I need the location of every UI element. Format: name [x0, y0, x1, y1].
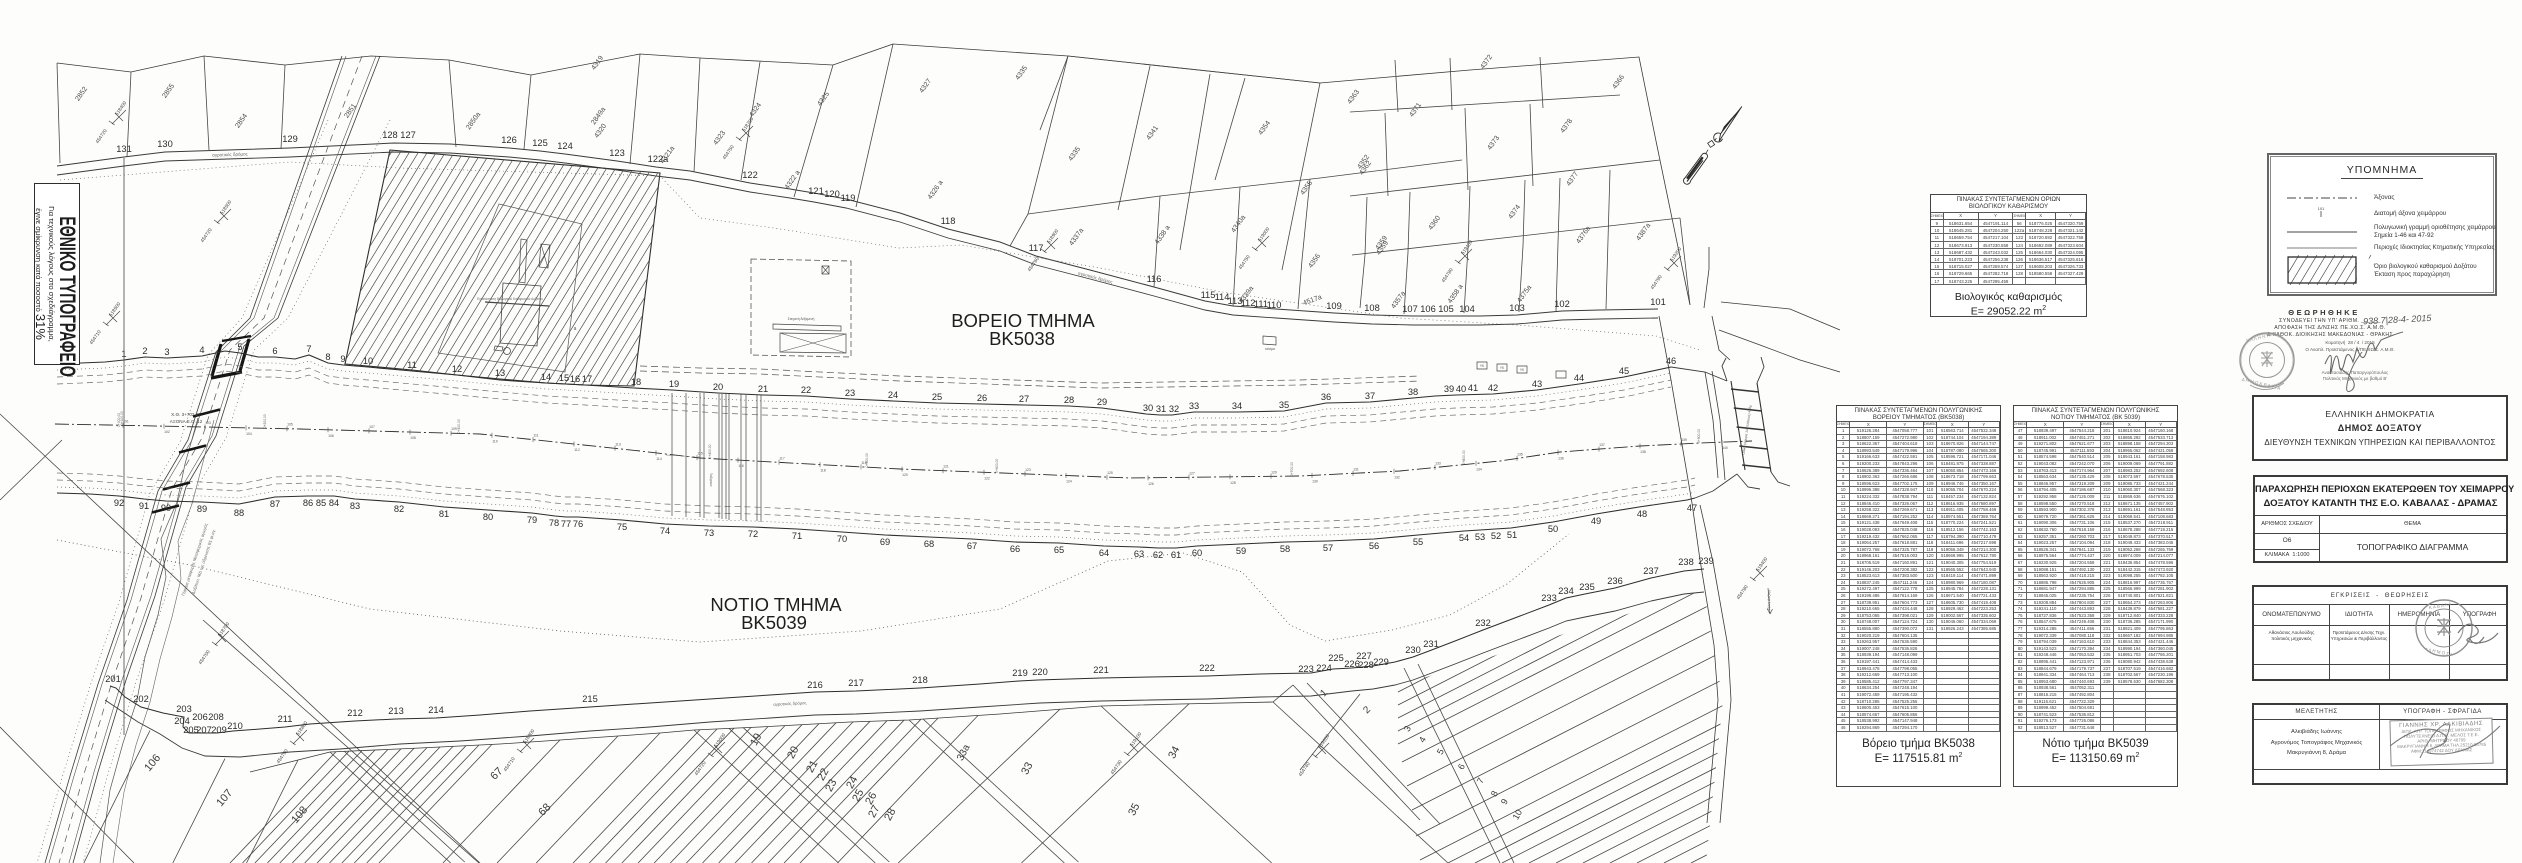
svg-text:4366: 4366 — [1611, 74, 1626, 91]
svg-text:48: 48 — [1637, 509, 1647, 519]
svg-text:4: 4 — [199, 345, 204, 355]
svg-text:454720: 454720 — [200, 227, 214, 244]
svg-text:32: 32 — [1169, 404, 1179, 414]
svg-text:89: 89 — [197, 504, 207, 514]
svg-text:7: 7 — [1475, 776, 1486, 785]
svg-text:139: 139 — [1681, 438, 1687, 442]
svg-text:103: 103 — [1509, 303, 1525, 313]
svg-text:136: 136 — [1558, 456, 1564, 460]
svg-text:454700: 454700 — [198, 649, 212, 666]
svg-text:130: 130 — [1312, 479, 1318, 483]
svg-text:4337a: 4337a — [1068, 227, 1085, 247]
svg-text:114: 114 — [656, 457, 662, 461]
svg-text:80: 80 — [483, 512, 493, 522]
svg-text:κτίσμα: κτίσμα — [1265, 347, 1275, 351]
svg-text:60: 60 — [1192, 548, 1202, 558]
svg-text:4338 a: 4338 a — [1154, 224, 1172, 246]
svg-text:63: 63 — [1134, 549, 1144, 559]
svg-text:2: 2 — [142, 346, 147, 356]
svg-text:88: 88 — [234, 508, 244, 518]
svg-text:65: 65 — [1054, 545, 1064, 555]
svg-text:206: 206 — [192, 712, 208, 722]
svg-text:229: 229 — [1373, 657, 1389, 667]
svg-text:28: 28 — [882, 806, 898, 822]
svg-text:124: 124 — [1066, 480, 1072, 484]
svg-text:αγροτικός δρόμος: αγροτικός δρόμος — [773, 700, 806, 707]
svg-text:207: 207 — [196, 725, 212, 735]
svg-text:231: 231 — [1423, 639, 1439, 649]
svg-text:13: 13 — [495, 368, 505, 378]
svg-text:108: 108 — [410, 436, 416, 440]
svg-text:235: 235 — [1579, 582, 1595, 592]
svg-text:129: 129 — [282, 134, 298, 144]
svg-text:126: 126 — [1148, 482, 1154, 486]
svg-text:7: 7 — [306, 344, 311, 354]
svg-text:4356: 4356 — [1307, 253, 1322, 270]
svg-text:131: 131 — [116, 144, 132, 154]
svg-text:454760: 454760 — [1027, 256, 1041, 273]
svg-text:105: 105 — [287, 423, 293, 427]
svg-text:130: 130 — [157, 139, 173, 149]
svg-text:68: 68 — [924, 539, 934, 549]
svg-text:92: 92 — [114, 498, 124, 508]
svg-text:454790: 454790 — [1650, 274, 1664, 291]
svg-text:68: 68 — [536, 801, 553, 818]
svg-text:101: 101 — [2318, 206, 2325, 211]
svg-text:a: a — [574, 326, 577, 332]
svg-text:120: 120 — [902, 473, 908, 477]
svg-text:45: 45 — [1619, 366, 1629, 376]
svg-text:9: 9 — [1499, 797, 1510, 806]
svg-text:25: 25 — [932, 392, 942, 402]
svg-text:67: 67 — [488, 765, 505, 782]
svg-text:4324: 4324 — [748, 102, 763, 119]
svg-text:39: 39 — [1444, 384, 1454, 394]
svg-text:Στεγανή δεξαμενή: Στεγανή δεξαμενή — [788, 317, 815, 321]
svg-text:138: 138 — [1640, 450, 1646, 454]
svg-text:27: 27 — [866, 803, 882, 819]
svg-text:34: 34 — [1232, 401, 1242, 411]
svg-text:71: 71 — [792, 531, 802, 541]
svg-text:211: 211 — [278, 714, 293, 724]
svg-text:24: 24 — [844, 774, 860, 790]
svg-text:91: 91 — [139, 501, 149, 511]
svg-text:33: 33 — [1019, 760, 1035, 776]
svg-text:119: 119 — [841, 193, 856, 203]
svg-text:218: 218 — [912, 675, 928, 685]
svg-text:0+900.00: 0+900.00 — [1697, 429, 1701, 443]
svg-text:76: 76 — [573, 519, 583, 529]
svg-text:113: 113 — [615, 442, 621, 446]
svg-text:232: 232 — [1475, 618, 1491, 628]
svg-text:79: 79 — [527, 515, 537, 525]
svg-text:ΥΚ: ΥΚ — [1500, 366, 1505, 370]
svg-text:454750: 454750 — [722, 144, 736, 161]
svg-text:35: 35 — [1126, 801, 1142, 817]
svg-text:5: 5 — [237, 342, 242, 352]
svg-text:73: 73 — [704, 528, 714, 538]
svg-text:131: 131 — [1353, 467, 1359, 471]
svg-text:4376a: 4376a — [1575, 225, 1592, 245]
svg-text:82: 82 — [394, 504, 404, 514]
svg-text:10: 10 — [363, 356, 373, 366]
svg-text:14: 14 — [541, 372, 551, 382]
svg-text:4325: 4325 — [816, 91, 831, 108]
svg-text:4517a: 4517a — [1302, 294, 1323, 307]
svg-text:4373: 4373 — [1486, 135, 1501, 152]
svg-text:121: 121 — [808, 186, 824, 196]
svg-text:53: 53 — [1475, 532, 1485, 542]
svg-text:50: 50 — [1548, 524, 1558, 534]
svg-text:203: 203 — [176, 704, 192, 714]
svg-text:112: 112 — [574, 448, 580, 452]
svg-text:125: 125 — [532, 138, 548, 148]
svg-text:107: 107 — [369, 425, 375, 429]
svg-text:221: 221 — [1093, 665, 1109, 675]
svg-text:8: 8 — [1489, 789, 1500, 798]
svg-text:21: 21 — [758, 384, 768, 394]
svg-text:217: 217 — [848, 678, 864, 688]
svg-text:2: 2 — [1361, 704, 1373, 716]
svg-text:102: 102 — [164, 430, 170, 434]
svg-text:59: 59 — [1236, 546, 1246, 556]
svg-text:110: 110 — [1267, 300, 1282, 310]
svg-text:108: 108 — [289, 804, 310, 826]
svg-text:38: 38 — [1408, 387, 1418, 397]
svg-text:105: 105 — [1438, 304, 1454, 314]
svg-text:37: 37 — [1365, 391, 1375, 401]
svg-text:15: 15 — [559, 373, 569, 383]
svg-text:209: 209 — [211, 725, 227, 735]
svg-text:129: 129 — [1271, 470, 1277, 474]
svg-text:8: 8 — [325, 352, 330, 362]
svg-text:4326 a: 4326 a — [927, 179, 945, 201]
svg-text:106: 106 — [328, 434, 334, 438]
svg-text:107: 107 — [214, 787, 235, 809]
svg-text:133: 133 — [1435, 462, 1441, 466]
svg-text:52: 52 — [1491, 531, 1501, 541]
svg-text:23: 23 — [845, 388, 855, 398]
svg-text:9: 9 — [340, 354, 345, 364]
svg-text:115: 115 — [1201, 290, 1216, 300]
svg-text:212: 212 — [347, 708, 363, 718]
svg-text:86: 86 — [303, 498, 313, 508]
svg-text:123: 123 — [1025, 468, 1031, 472]
svg-text:225: 225 — [1328, 653, 1344, 663]
svg-text:61: 61 — [1171, 550, 1181, 560]
svg-text:16: 16 — [570, 374, 580, 384]
svg-text:34: 34 — [1166, 744, 1182, 760]
svg-text:6: 6 — [1456, 762, 1467, 771]
svg-text:215: 215 — [582, 694, 598, 704]
svg-text:84: 84 — [329, 498, 339, 508]
svg-text:29: 29 — [1097, 397, 1107, 407]
svg-text:454780: 454780 — [1736, 584, 1750, 601]
svg-text:28: 28 — [1064, 395, 1074, 405]
svg-text:69: 69 — [880, 537, 890, 547]
svg-text:4355: 4355 — [1299, 180, 1314, 197]
svg-text:17: 17 — [582, 374, 592, 384]
svg-text:123: 123 — [609, 148, 625, 158]
svg-text:101: 101 — [1650, 297, 1666, 307]
svg-text:11: 11 — [407, 360, 417, 370]
svg-text:31: 31 — [1156, 404, 1166, 414]
svg-text:222: 222 — [1199, 663, 1215, 673]
svg-text:220: 220 — [1032, 667, 1048, 677]
svg-text:72: 72 — [748, 529, 758, 539]
svg-text:4378: 4378 — [1559, 118, 1574, 135]
svg-text:0+200.00: 0+200.00 — [263, 414, 267, 428]
svg-text:83: 83 — [350, 501, 360, 511]
svg-text:87: 87 — [270, 499, 280, 509]
svg-text:64: 64 — [1099, 548, 1109, 558]
svg-text:0+500.00: 0+500.00 — [865, 453, 869, 467]
svg-text:18: 18 — [631, 377, 641, 387]
svg-text:43: 43 — [1532, 379, 1542, 389]
svg-text:454710: 454710 — [503, 756, 517, 773]
svg-text:4371: 4371 — [1408, 102, 1423, 119]
svg-text:127: 127 — [1189, 471, 1195, 475]
svg-text:108: 108 — [1364, 303, 1380, 313]
svg-text:70: 70 — [837, 534, 847, 544]
svg-text:20: 20 — [785, 744, 801, 760]
svg-text:27: 27 — [1019, 394, 1029, 404]
svg-text:55: 55 — [1413, 537, 1423, 547]
svg-text:106: 106 — [1420, 304, 1436, 314]
svg-text:4354: 4354 — [1257, 120, 1272, 137]
svg-text:0+700.00: 0+700.00 — [1290, 462, 1294, 476]
svg-text:238: 238 — [1678, 557, 1694, 567]
svg-text:2852: 2852 — [74, 86, 89, 103]
svg-text:74: 74 — [660, 526, 670, 536]
svg-text:124: 124 — [557, 141, 573, 151]
svg-text:237: 237 — [1643, 566, 1659, 576]
svg-text:75: 75 — [617, 522, 627, 532]
svg-text:67: 67 — [967, 541, 977, 551]
svg-text:77: 77 — [561, 519, 571, 529]
svg-text:454750: 454750 — [1238, 254, 1252, 271]
svg-text:454720: 454720 — [95, 128, 109, 145]
svg-text:0+300.00: 0+300.00 — [457, 419, 461, 433]
svg-text:6: 6 — [272, 346, 277, 356]
svg-text:233: 233 — [1541, 593, 1557, 603]
svg-text:4335: 4335 — [1067, 146, 1082, 163]
svg-text:33: 33 — [1189, 401, 1199, 411]
svg-text:57: 57 — [1323, 543, 1333, 553]
svg-text:118: 118 — [820, 469, 826, 473]
svg-text:135: 135 — [1517, 452, 1523, 456]
svg-text:4341: 4341 — [1145, 125, 1160, 142]
svg-text:81: 81 — [439, 509, 449, 519]
svg-text:58: 58 — [1280, 544, 1290, 554]
svg-text:4340a: 4340a — [1230, 214, 1247, 234]
svg-text:4335: 4335 — [1014, 65, 1029, 82]
svg-text:0+800.00: 0+800.00 — [1462, 450, 1466, 464]
svg-text:3: 3 — [1402, 724, 1413, 733]
svg-text:41: 41 — [1468, 383, 1478, 393]
svg-text:234: 234 — [1558, 586, 1574, 596]
svg-text:αγροτικός δρόμος: αγροτικός δρόμος — [212, 150, 249, 157]
svg-text:ΥΚ: ΥΚ — [1520, 368, 1525, 372]
svg-text:4: 4 — [1417, 735, 1428, 744]
svg-text:ΑΞΟΝΑ Ε.Ο. 12: ΑΞΟΝΑ Ε.Ο. 12 — [170, 419, 203, 424]
svg-text:56: 56 — [1369, 541, 1379, 551]
svg-text:42: 42 — [1488, 383, 1498, 393]
svg-text:2850a: 2850a — [465, 111, 482, 131]
svg-text:140: 140 — [1722, 446, 1728, 450]
svg-text:22: 22 — [801, 385, 811, 395]
svg-text:4363: 4363 — [1346, 89, 1361, 106]
svg-text:236: 236 — [1607, 576, 1623, 586]
svg-text:201: 201 — [105, 674, 121, 684]
svg-text:104: 104 — [1459, 304, 1475, 314]
svg-text:4375a: 4375a — [1516, 284, 1533, 304]
svg-text:230: 230 — [1405, 645, 1421, 655]
svg-text:224: 224 — [1316, 663, 1332, 673]
svg-text:ΒΚ5038: ΒΚ5038 — [989, 328, 1055, 349]
svg-text:49: 49 — [1591, 516, 1601, 526]
svg-text:118: 118 — [941, 216, 956, 226]
svg-text:24: 24 — [888, 390, 898, 400]
svg-text:103: 103 — [205, 421, 211, 425]
svg-text:111: 111 — [533, 434, 538, 438]
svg-text:51: 51 — [1507, 530, 1517, 540]
svg-text:85: 85 — [316, 498, 326, 508]
svg-text:19: 19 — [669, 379, 679, 389]
svg-text:Χ.Θ. 3+702,27: Χ.Θ. 3+702,27 — [171, 412, 201, 417]
svg-text:36: 36 — [1321, 392, 1331, 402]
svg-text:0+600.00: 0+600.00 — [995, 459, 999, 473]
svg-text:128 127: 128 127 — [382, 130, 416, 140]
svg-text:33a: 33a — [955, 742, 973, 762]
svg-text:3: 3 — [164, 347, 169, 357]
svg-text:4360: 4360 — [1427, 215, 1442, 232]
svg-text:20: 20 — [713, 382, 723, 392]
svg-text:62: 62 — [1153, 550, 1163, 560]
svg-text:214: 214 — [428, 705, 444, 715]
svg-text:2854: 2854 — [234, 113, 249, 130]
svg-text:122: 122 — [984, 476, 990, 480]
svg-text:454710: 454710 — [89, 329, 103, 346]
svg-text:104: 104 — [246, 432, 252, 436]
svg-text:223: 223 — [1298, 664, 1314, 674]
svg-text:0+400.00: 0+400.00 — [708, 444, 712, 458]
svg-text:210: 210 — [227, 721, 243, 731]
svg-text:4327: 4327 — [918, 78, 933, 95]
svg-text:122: 122 — [742, 170, 758, 180]
svg-text:44: 44 — [1574, 373, 1584, 383]
svg-text:10: 10 — [1511, 808, 1525, 822]
svg-text:78: 78 — [549, 518, 559, 528]
svg-text:ΥΚ: ΥΚ — [1480, 364, 1485, 368]
svg-text:4374: 4374 — [1507, 204, 1522, 221]
svg-text:121: 121 — [943, 465, 949, 469]
svg-text:12: 12 — [452, 364, 462, 374]
svg-text:2855: 2855 — [161, 83, 176, 100]
svg-text:5: 5 — [1435, 747, 1446, 756]
svg-text:216: 216 — [807, 680, 823, 690]
svg-text:40: 40 — [1456, 384, 1466, 394]
svg-text:134: 134 — [1476, 467, 1482, 471]
svg-text:90: 90 — [161, 503, 171, 513]
svg-text:26: 26 — [977, 393, 987, 403]
svg-text:110: 110 — [492, 439, 498, 443]
svg-text:66: 66 — [1010, 544, 1020, 554]
svg-text:213: 213 — [388, 706, 404, 716]
svg-text:132: 132 — [1394, 475, 1400, 479]
svg-text:35: 35 — [1279, 400, 1289, 410]
svg-text:117: 117 — [779, 456, 785, 460]
svg-text:137: 137 — [1599, 443, 1605, 447]
svg-text:4358 a: 4358 a — [1447, 283, 1465, 305]
svg-text:2849a: 2849a — [590, 106, 607, 126]
svg-text:120: 120 — [824, 189, 840, 199]
svg-text:4319: 4319 — [590, 55, 605, 72]
svg-text:ΒΚ5039: ΒΚ5039 — [741, 612, 807, 633]
svg-text:109: 109 — [1326, 301, 1342, 311]
svg-text:228: 228 — [1358, 660, 1374, 670]
svg-text:117: 117 — [1029, 243, 1044, 253]
svg-text:202: 202 — [133, 694, 149, 704]
svg-text:128: 128 — [1230, 481, 1236, 485]
svg-text:4377: 4377 — [1565, 171, 1580, 188]
svg-text:4387a: 4387a — [1635, 222, 1652, 242]
svg-text:0+000.00: 0+000.00 — [117, 413, 121, 427]
svg-text:208: 208 — [208, 712, 224, 722]
svg-text:125: 125 — [1107, 471, 1113, 475]
svg-text:454780: 454780 — [1441, 267, 1455, 284]
svg-text:126: 126 — [501, 135, 517, 145]
svg-text:30: 30 — [1143, 403, 1153, 413]
svg-text:54: 54 — [1459, 533, 1469, 543]
svg-text:Εγκατάσταση Βιολογικού Καθαρισ: Εγκατάσταση Βιολογικού Καθαρισμού Δοξάτο… — [477, 297, 543, 301]
svg-text:αποθήκη: αποθήκη — [709, 473, 713, 486]
svg-text:219: 219 — [1012, 668, 1028, 678]
svg-text:4323: 4323 — [712, 130, 727, 147]
svg-text:106: 106 — [142, 752, 163, 774]
